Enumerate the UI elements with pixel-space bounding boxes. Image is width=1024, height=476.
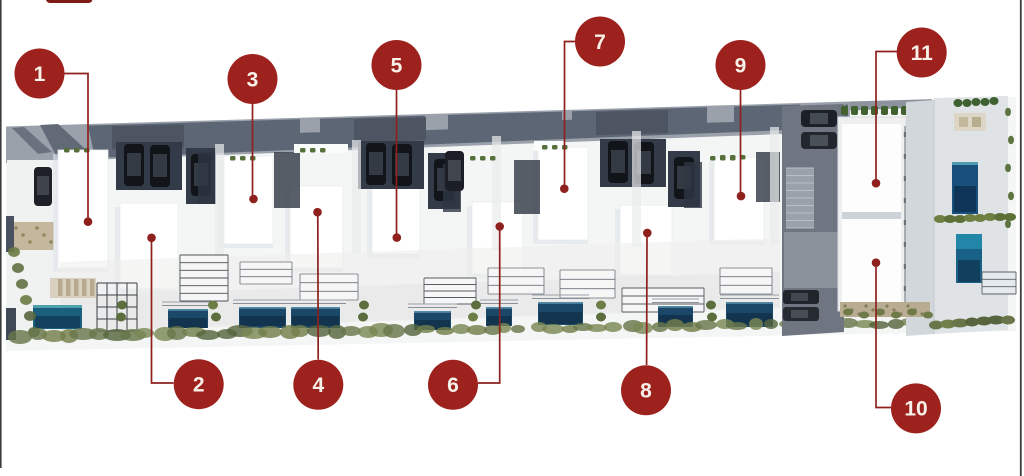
svg-text:4: 4 xyxy=(312,374,324,397)
svg-text:9: 9 xyxy=(735,54,747,77)
svg-text:6: 6 xyxy=(447,374,459,397)
svg-text:5: 5 xyxy=(391,54,403,77)
svg-text:2: 2 xyxy=(193,374,205,397)
svg-text:3: 3 xyxy=(247,68,259,91)
svg-text:8: 8 xyxy=(640,380,652,403)
svg-text:7: 7 xyxy=(594,31,606,54)
svg-text:1: 1 xyxy=(34,63,46,86)
svg-text:11: 11 xyxy=(911,42,934,65)
svg-text:10: 10 xyxy=(904,398,927,421)
